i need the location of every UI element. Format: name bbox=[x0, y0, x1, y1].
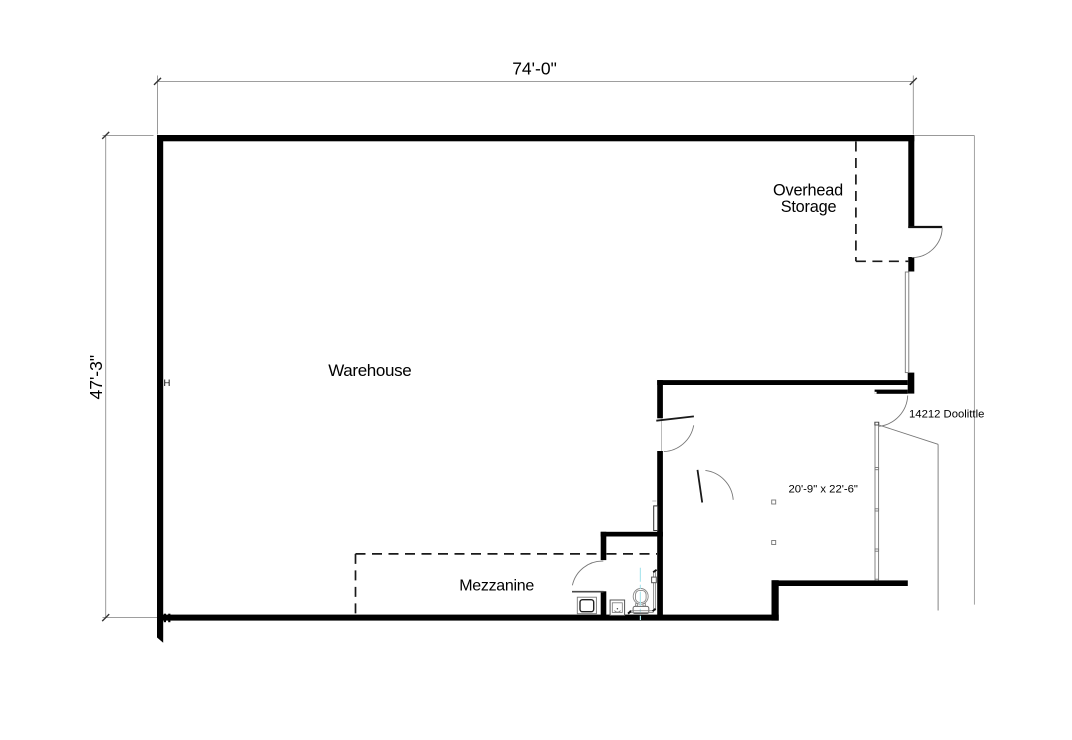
svg-text:Overhead: Overhead bbox=[773, 182, 843, 200]
svg-text:14212 Doolittle: 14212 Doolittle bbox=[909, 408, 984, 420]
svg-text:20'-9" x 22'-6": 20'-9" x 22'-6" bbox=[788, 483, 857, 495]
svg-text:Storage: Storage bbox=[781, 198, 837, 216]
svg-text:Mezzanine: Mezzanine bbox=[459, 577, 534, 594]
svg-text:74'-0": 74'-0" bbox=[512, 59, 557, 79]
svg-text:Warehouse: Warehouse bbox=[328, 361, 411, 380]
svg-text:47'-3": 47'-3" bbox=[86, 355, 106, 400]
svg-text:H: H bbox=[164, 378, 171, 389]
